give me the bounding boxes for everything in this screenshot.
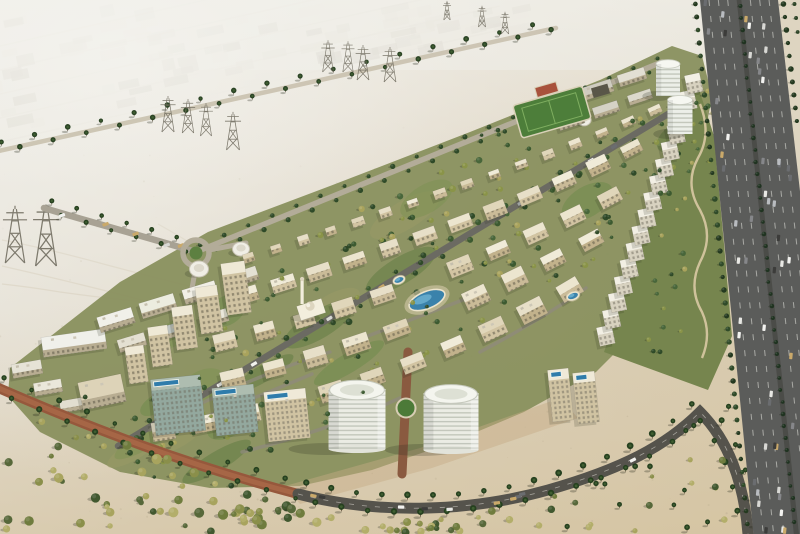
- aerial-rendering: [0, 0, 800, 534]
- scene-svg: [0, 0, 800, 534]
